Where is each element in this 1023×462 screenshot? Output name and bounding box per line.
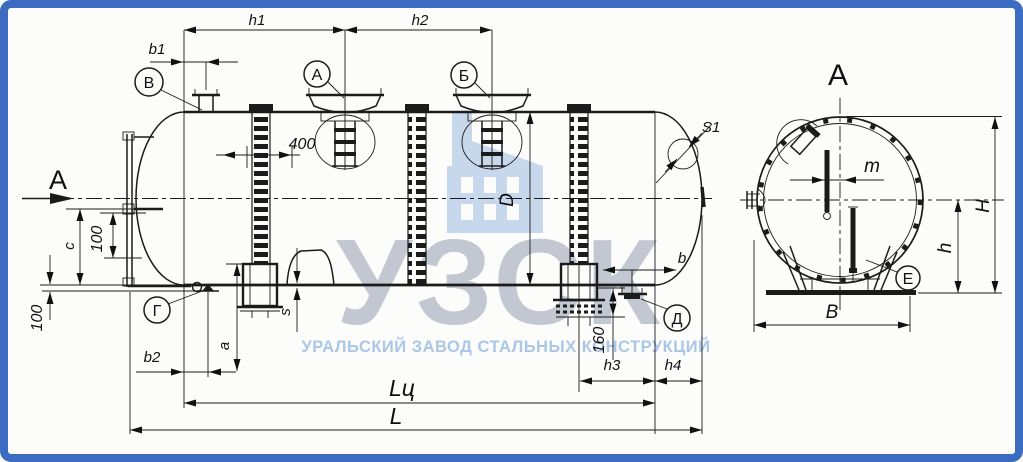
dim-b: b [678, 250, 686, 267]
drawing-canvas: УЗСК УРАЛЬСКИЙ ЗАВОД СТАЛЬНЫХ КОНСТРУКЦИ… [0, 0, 1023, 462]
dim-400: 400 [289, 136, 316, 153]
callout-a: А [312, 67, 323, 84]
dim-h4: h4 [665, 357, 682, 374]
dim-B: B [826, 302, 839, 323]
tank-drawing: УЗСК УРАЛЬСКИЙ ЗАВОД СТАЛЬНЫХ КОНСТРУКЦИ… [0, 0, 1023, 462]
dim-h2: h2 [412, 12, 429, 29]
dim-L: L [390, 403, 403, 429]
dim-100-gauge: 100 [89, 226, 106, 253]
dim-b2: b2 [144, 349, 161, 366]
section-arrow-label: А [49, 165, 67, 195]
callout-d: Д [672, 311, 683, 328]
dim-c: c [61, 242, 78, 250]
dim-b1: b1 [149, 41, 166, 58]
watermark-brand: УЗСК [336, 214, 664, 350]
watermark-tagline: УРАЛЬСКИЙ ЗАВОД СТАЛЬНЫХ КОНСТРУКЦИЙ [301, 337, 710, 356]
weld-mark [702, 187, 704, 207]
dim-Lc: Lц [389, 375, 415, 401]
dim-h: h [935, 243, 956, 254]
dim-100-bottom: 100 [29, 305, 46, 332]
dim-h1: h1 [249, 12, 266, 29]
dim-S1: S1 [702, 119, 720, 136]
base-plate [766, 290, 916, 295]
dim-160: 160 [591, 327, 608, 354]
dim-s: s [277, 308, 294, 316]
dim-h3: h3 [604, 357, 621, 374]
callout-b: Б [459, 68, 470, 85]
section-title: А [828, 59, 848, 92]
callout-g: Г [153, 303, 162, 320]
callout-e: Е [903, 271, 914, 288]
dim-m: m [864, 156, 880, 177]
callout-v: В [144, 75, 155, 92]
dim-H: H [973, 199, 994, 213]
dim-a: a [216, 342, 233, 350]
dim-D: D [497, 193, 518, 207]
